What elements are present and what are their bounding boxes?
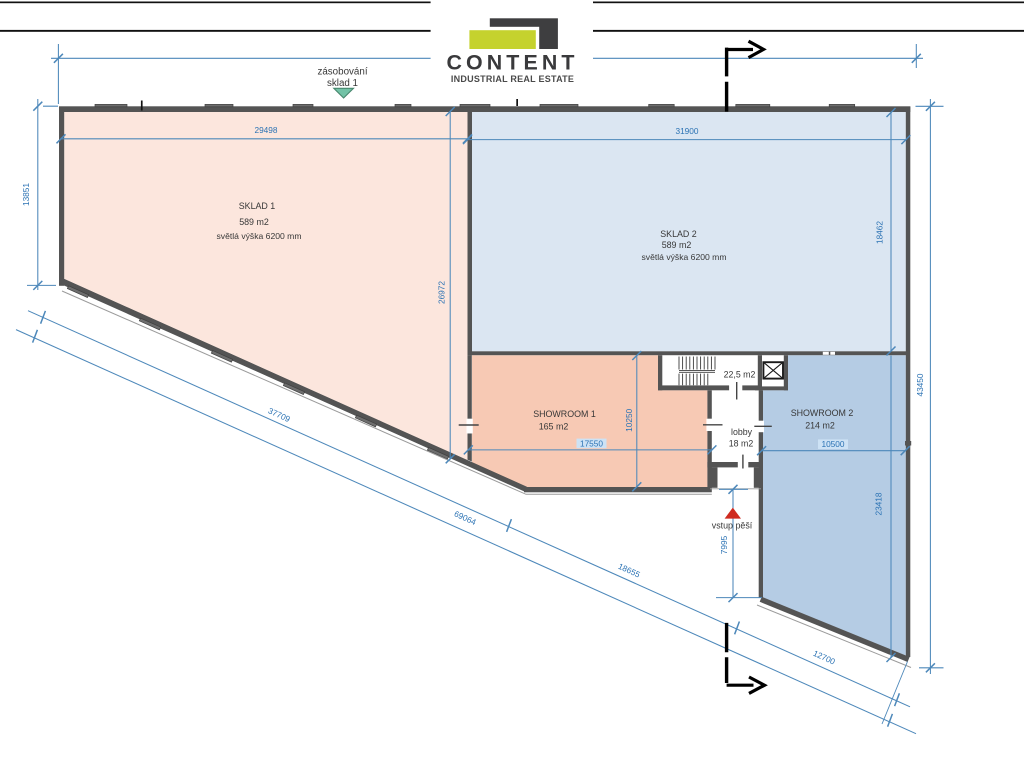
svg-text:světlá výška 6200 mm: světlá výška 6200 mm bbox=[641, 252, 726, 262]
svg-text:světlá výška 6200 mm: světlá výška 6200 mm bbox=[216, 231, 301, 241]
svg-text:165 m2: 165 m2 bbox=[539, 421, 569, 431]
svg-text:zásobování: zásobování bbox=[317, 67, 367, 78]
svg-text:589 m2: 589 m2 bbox=[239, 217, 269, 227]
svg-text:31900: 31900 bbox=[675, 126, 698, 136]
svg-text:CONTENT: CONTENT bbox=[446, 51, 578, 75]
svg-text:26972: 26972 bbox=[437, 281, 447, 304]
svg-text:214 m2: 214 m2 bbox=[805, 420, 835, 430]
svg-text:SHOWROOM 1: SHOWROOM 1 bbox=[533, 409, 596, 419]
svg-text:7995: 7995 bbox=[719, 535, 729, 554]
svg-text:vstup pěší: vstup pěší bbox=[712, 521, 753, 531]
svg-text:43450: 43450 bbox=[915, 373, 925, 396]
svg-text:29498: 29498 bbox=[254, 125, 277, 135]
svg-text:17550: 17550 bbox=[580, 438, 603, 448]
svg-text:lobby: lobby bbox=[731, 427, 753, 437]
svg-text:23418: 23418 bbox=[874, 492, 884, 515]
svg-text:589 m2: 589 m2 bbox=[662, 240, 692, 250]
svg-text:INDUSTRIAL REAL ESTATE: INDUSTRIAL REAL ESTATE bbox=[451, 74, 574, 84]
svg-text:SHOWROOM 2: SHOWROOM 2 bbox=[791, 408, 854, 418]
svg-text:SKLAD 2: SKLAD 2 bbox=[660, 229, 697, 239]
svg-text:SKLAD 1: SKLAD 1 bbox=[239, 201, 276, 211]
svg-text:18462: 18462 bbox=[875, 221, 885, 244]
svg-text:13851: 13851 bbox=[21, 183, 31, 206]
svg-text:10250: 10250 bbox=[624, 408, 634, 431]
svg-text:sklad 1: sklad 1 bbox=[327, 78, 358, 89]
svg-text:22,5 m2: 22,5 m2 bbox=[724, 370, 756, 380]
svg-text:18 m2: 18 m2 bbox=[729, 439, 754, 449]
svg-text:10500: 10500 bbox=[821, 439, 844, 449]
